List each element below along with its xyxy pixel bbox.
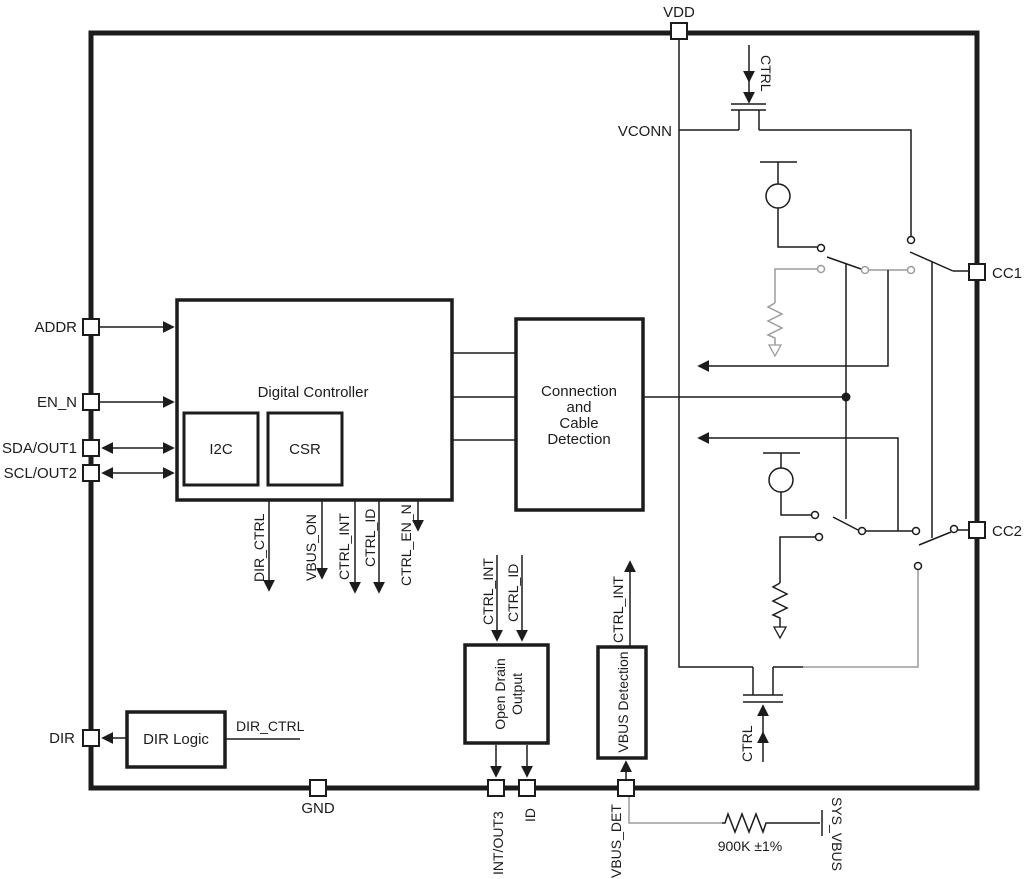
connection-label-1: Connection (541, 383, 617, 400)
rd2-resistor (773, 583, 787, 627)
diagram-canvas: CTRL VCONN (0, 0, 1027, 879)
dir-ctrl-in-label: DIR_CTRL (236, 718, 305, 734)
addr-pin-label: ADDR (34, 319, 77, 336)
cc1-sense-arrow (699, 270, 888, 366)
cs2-current-source (769, 468, 793, 492)
int-out3-pin-label: INT/OUT3 (490, 811, 506, 875)
vdd-pin-label: VDD (663, 4, 695, 21)
connection-label-2: and (566, 399, 591, 416)
int-out3-pin-pad (488, 780, 504, 796)
en-n-pin-label: EN_N (37, 394, 77, 411)
od-ctrl-id-label: CTRL_ID (505, 564, 521, 622)
rd1-resistor-gray (768, 303, 782, 345)
bottom-fet-section: CTRL (739, 667, 803, 762)
dir-pin-pad (83, 730, 99, 746)
open-drain-section: CTRL_INT CTRL_ID Open Drain Output (465, 555, 548, 776)
cc2-rd-terminal (816, 534, 823, 541)
cs1-current-source (766, 184, 790, 208)
ctrl-id-label: CTRL_ID (362, 509, 378, 567)
cc1-vconn-terminal (908, 237, 915, 244)
cc2-sense-arrow (699, 438, 898, 531)
cc2-fet-wire-gray (803, 570, 918, 667)
ctrl-int-label: CTRL_INT (336, 513, 352, 580)
cc1-cs-switch-blade (827, 257, 861, 269)
digital-controller-section: Digital Controller I2C CSR DIR_CTRL VBUS… (177, 300, 452, 592)
gnd-pin-pad (310, 780, 326, 796)
resistor-value-label: 900K ±1% (718, 838, 783, 854)
sda-out1-pin-pad (83, 440, 99, 456)
gnd-pin-label: GND (301, 800, 335, 817)
cc2-switch-section (699, 438, 969, 667)
vbus-detection-label: VBUS Detection (615, 651, 631, 752)
digital-controller-label: Digital Controller (258, 384, 369, 401)
dir-logic-label: DIR Logic (143, 731, 209, 748)
vbus-det-pin-label: VBUS_DET (608, 804, 624, 878)
vdd-rail-wire (679, 39, 753, 667)
csr-label: CSR (289, 441, 321, 458)
id-pin-label: ID (522, 808, 538, 822)
rd1-ground-icon (769, 345, 781, 356)
dir-logic-section: DIR Logic DIR_CTRL (103, 712, 305, 767)
cc2-link-terminal-right (913, 528, 920, 535)
vconn-label: VCONN (618, 123, 672, 140)
vbus-det-pin-pad (618, 780, 634, 796)
connection-label-4: Detection (547, 431, 610, 448)
rd2-ground-icon (774, 627, 786, 638)
functional-block-diagram: CTRL VCONN (0, 0, 1027, 879)
left-pin-wires (99, 327, 173, 473)
cc1-pin-pad (969, 264, 985, 280)
dir-pin-label: DIR (49, 730, 75, 747)
cc1-link-terminal-right (908, 267, 915, 274)
vbusdet-ctrl-int-label: CTRL_INT (610, 576, 626, 643)
ctrl-bottom-label: CTRL (739, 725, 755, 762)
i2c-label: I2C (209, 441, 233, 458)
ctrl-top-label: CTRL (758, 55, 774, 92)
scl-out2-pin-label: SCL/OUT2 (4, 465, 77, 482)
id-pin-pad (519, 780, 535, 796)
cs1-feed-wire (778, 208, 817, 247)
cc1-switch-section (699, 162, 969, 538)
en-n-pin-pad (83, 394, 99, 410)
cc2-fet-terminal (915, 563, 922, 570)
vbus-detection-section: CTRL_INT VBUS Detection (598, 562, 646, 779)
cc2-pin-label: CC2 (992, 523, 1022, 540)
external-components: 900K ±1% SYS_VBUS (629, 796, 845, 871)
sys-vbus-label: SYS_VBUS (829, 797, 845, 871)
scl-out2-pin-pad (83, 465, 99, 481)
cc2-link-terminal-left (859, 528, 866, 535)
ext-resistor (722, 814, 820, 832)
cc1-rd-terminal (818, 266, 825, 273)
vbus-det-ext-wire-gray (629, 796, 722, 823)
cs2-feed-wire (781, 492, 811, 515)
cc2-main-blade (919, 532, 951, 545)
connection-label-3: Cable (559, 415, 598, 432)
vconn-fet-section: CTRL VCONN (618, 39, 911, 667)
addr-pin-pad (83, 319, 99, 335)
vbus-on-label: VBUS_ON (303, 514, 319, 581)
top-fet-drain-wire (759, 130, 911, 236)
vdd-pin-pad (671, 23, 687, 39)
connection-detection-section: Connection and Cable Detection (452, 319, 846, 510)
cc2-pad-terminal (951, 526, 958, 533)
sda-out1-pin-label: SDA/OUT1 (2, 440, 77, 457)
od-ctrl-int-label: CTRL_INT (480, 558, 496, 625)
ctrl-en-n-label: CTRL_EN_N (398, 504, 414, 586)
rd2-feed (780, 537, 815, 583)
cc2-pin-pad (969, 522, 985, 538)
cc1-link-terminal-left (862, 267, 869, 274)
rd1-feed-gray (775, 269, 817, 303)
dir-ctrl-label: DIR_CTRL (251, 513, 267, 582)
cc1-cs-terminal (818, 245, 825, 252)
open-drain-label-1: Open Drain (492, 658, 508, 730)
cc1-pin-label: CC1 (992, 265, 1022, 282)
cc2-cs-terminal (812, 512, 819, 519)
open-drain-label-2: Output (509, 673, 525, 715)
